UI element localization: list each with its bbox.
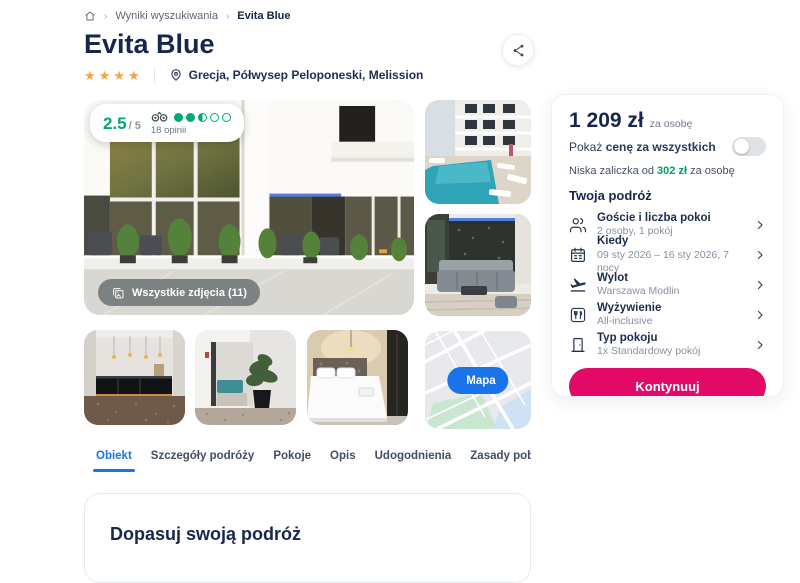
rating-badge[interactable]: 2.5 / 5 18 opinii: [90, 104, 244, 142]
map-button-label: Mapa: [466, 375, 495, 387]
low-deposit-note: Niska zaliczka od 302 zł za osobę: [569, 165, 766, 177]
home-icon[interactable]: [84, 10, 96, 22]
all-photos-label: Wszystkie zdjęcia (11): [132, 287, 247, 299]
page-title: Evita Blue: [84, 29, 215, 60]
trip-option-title: Wylot: [597, 272, 744, 286]
chevron-right-icon: [754, 219, 766, 231]
price: 1 209 zł: [569, 109, 644, 133]
rating-dot-empty: [222, 113, 231, 122]
rating-score: 2.5: [103, 114, 127, 134]
meals-icon: [569, 306, 587, 324]
tripadvisor-owl-icon: [151, 111, 168, 123]
breadcrumb: › Wyniki wyszukiwania › Evita Blue: [84, 10, 290, 22]
trip-option-title: Typ pokoju: [597, 332, 744, 346]
photos-icon: [111, 286, 125, 300]
booking-summary-card: 1 209 zł za osobę Pokaż cenę za wszystki…: [551, 94, 784, 397]
calendar-icon: [569, 246, 587, 264]
trip-option-meals[interactable]: Wyżywienie All-inclusive: [569, 300, 766, 330]
trip-option-title: Kiedy: [597, 235, 744, 249]
rating-dot-empty: [210, 113, 219, 122]
share-button[interactable]: [502, 34, 534, 66]
map-tile[interactable]: Mapa: [425, 331, 531, 429]
chevron-right-icon: [754, 279, 766, 291]
match-your-trip-card: Dopasuj swoją podróż: [84, 493, 531, 583]
deposit-amount: 302 zł: [657, 165, 687, 177]
share-icon: [511, 43, 526, 58]
breadcrumb-search-results[interactable]: Wyniki wyszukiwania: [115, 10, 218, 22]
show-total-price-label: Pokaż cenę za wszystkich: [569, 140, 716, 154]
star-rating: ★★★★: [84, 69, 143, 82]
reception-lobby-photo[interactable]: [84, 330, 185, 425]
star-icon: ★: [128, 68, 143, 83]
section-title: Dopasuj swoją podróż: [110, 524, 530, 545]
trip-option-departure[interactable]: Wylot Warszawa Modlin: [569, 270, 766, 300]
tab-pokoje[interactable]: Pokoje: [273, 444, 311, 472]
rating-scale: / 5: [129, 120, 141, 132]
show-total-price-toggle[interactable]: [732, 137, 766, 156]
toggle-knob: [734, 139, 749, 154]
hotel-location: Grecja, Półwysep Peloponeski, Melission: [169, 68, 424, 82]
location-pin-icon: [169, 68, 183, 82]
lounge-photo[interactable]: [425, 214, 531, 316]
location-text: Grecja, Półwysep Peloponeski, Melission: [189, 68, 424, 82]
your-trip-heading: Twoja podróż: [569, 188, 766, 203]
tab-opis[interactable]: Opis: [330, 444, 356, 472]
tab-szczegoly-podrozy[interactable]: Szczegóły podróży: [151, 444, 255, 472]
map-button[interactable]: Mapa: [447, 367, 508, 394]
rating-dot-full: [186, 113, 195, 122]
main-hotel-photo[interactable]: 2.5 / 5 18 opinii: [84, 100, 414, 315]
breadcrumb-separator-icon: ›: [104, 11, 107, 22]
divider: [154, 67, 155, 83]
star-icon: ★: [99, 68, 114, 83]
chevron-right-icon: [754, 309, 766, 321]
trip-options-list: Goście i liczba pokoi 2 osoby, 1 pokój K…: [569, 210, 766, 360]
tab-obiekt[interactable]: Obiekt: [96, 444, 132, 472]
trip-option-value: Warszawa Modlin: [597, 285, 744, 298]
star-icon: ★: [84, 68, 99, 83]
plane-takeoff-icon: [569, 276, 587, 294]
hallway-photo[interactable]: [195, 330, 296, 425]
guests-icon: [569, 216, 587, 234]
rating-dot-half: [198, 113, 207, 122]
door-icon: [569, 336, 587, 354]
hotel-meta-row: ★★★★ Grecja, Półwysep Peloponeski, Melis…: [84, 66, 423, 84]
breadcrumb-current[interactable]: Evita Blue: [237, 10, 290, 22]
trip-option-value: 1x Standardowy pokój: [597, 345, 744, 358]
all-photos-button[interactable]: Wszystkie zdjęcia (11): [98, 279, 260, 306]
trip-option-title: Wyżywienie: [597, 302, 744, 316]
trip-option-value: All-inclusive: [597, 315, 744, 328]
pool-photo[interactable]: [425, 100, 531, 204]
bedroom-photo[interactable]: [307, 330, 408, 425]
price-suffix: za osobę: [650, 118, 693, 130]
rating-reviews: 18 opinii: [151, 125, 231, 136]
tab-zasady-pobytu[interactable]: Zasady pobytu: [470, 444, 531, 472]
trip-option-dates[interactable]: Kiedy 09 sty 2026 – 16 sty 2026, 7 nocy: [569, 240, 766, 270]
section-tabs: Obiekt Szczegóły podróży Pokoje Opis Udo…: [84, 444, 531, 472]
star-icon: ★: [113, 68, 128, 83]
chevron-right-icon: [754, 249, 766, 261]
chevron-right-icon: [754, 339, 766, 351]
trip-option-room-type[interactable]: Typ pokoju 1x Standardowy pokój: [569, 330, 766, 360]
trip-option-title: Goście i liczba pokoi: [597, 212, 744, 226]
rating-dot-full: [174, 113, 183, 122]
breadcrumb-separator-icon: ›: [226, 11, 229, 22]
rating-dots: [174, 113, 231, 122]
tab-udogodnienia[interactable]: Udogodnienia: [375, 444, 452, 472]
continue-button[interactable]: Kontynuuj: [569, 368, 766, 397]
